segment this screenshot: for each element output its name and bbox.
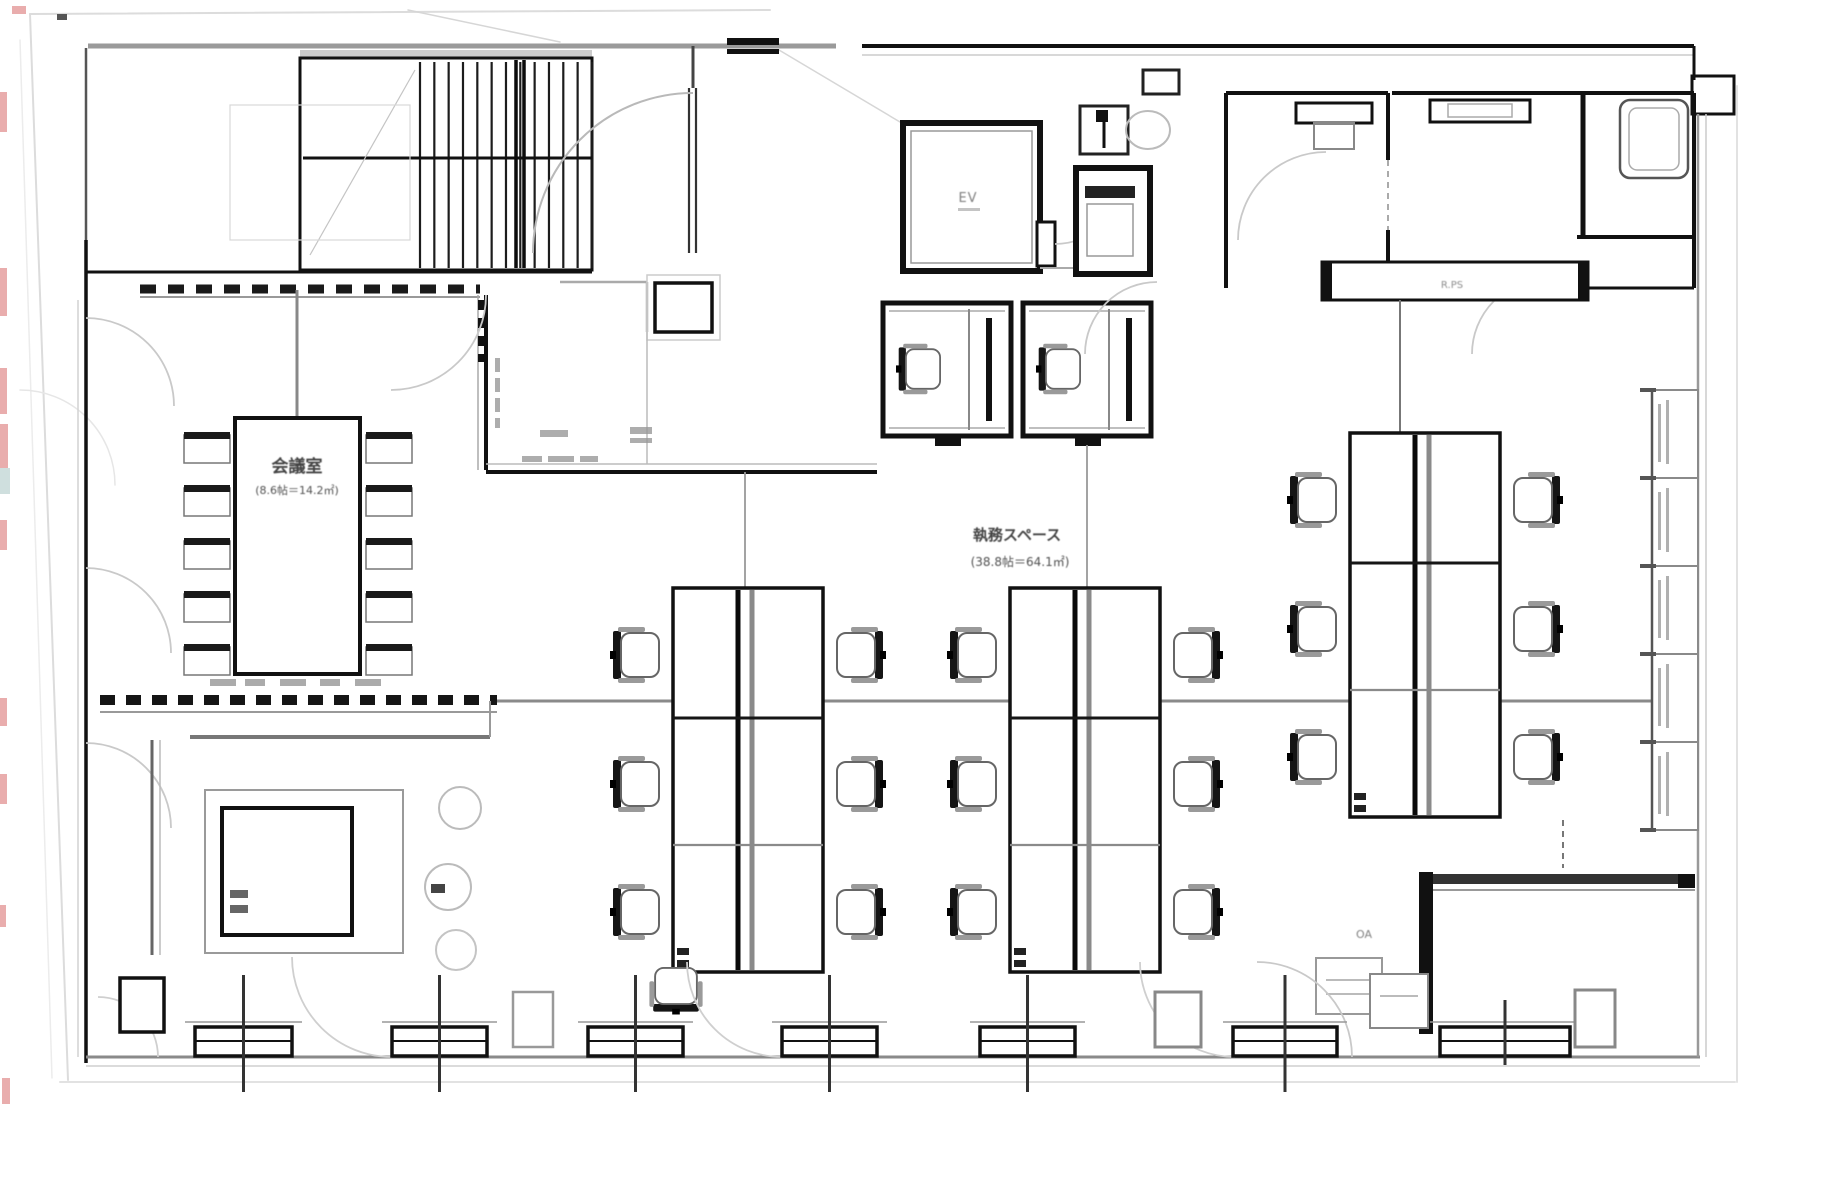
floor-plan-canvas: EV bbox=[0, 0, 1847, 1194]
meeting-room: 会議室 (8.6帖＝14.2㎡) bbox=[86, 290, 497, 712]
elevator-label: EV bbox=[958, 191, 977, 206]
office-chair bbox=[610, 884, 659, 940]
printer bbox=[1370, 974, 1428, 1028]
red-mark bbox=[12, 6, 26, 14]
office-chair bbox=[1174, 884, 1223, 940]
radiator-unit bbox=[772, 975, 887, 1092]
meeting-chair bbox=[184, 432, 230, 463]
radiator-unit bbox=[1430, 1000, 1580, 1065]
office-chair bbox=[610, 627, 659, 683]
meeting-chair bbox=[366, 485, 412, 516]
office-chair bbox=[649, 968, 702, 1015]
column-marker bbox=[120, 978, 164, 1032]
red-mark bbox=[0, 520, 7, 550]
desk-cluster bbox=[1010, 588, 1160, 972]
meeting-chair bbox=[184, 538, 230, 569]
column-marker bbox=[1575, 990, 1615, 1047]
radiator-unit bbox=[970, 975, 1085, 1092]
office-chair bbox=[837, 756, 886, 812]
office-chair bbox=[610, 756, 659, 812]
left-edge-red-marks bbox=[0, 6, 26, 1104]
booth-chair bbox=[896, 344, 940, 394]
toilet-block: R.PS bbox=[1076, 70, 1694, 433]
pipe-shaft-label: R.PS bbox=[1441, 280, 1463, 291]
meeting-room-area-label: (8.6帖＝14.2㎡) bbox=[255, 484, 339, 497]
office-chair bbox=[1287, 729, 1336, 785]
shelf-unit bbox=[1640, 740, 1698, 830]
red-mark bbox=[0, 268, 7, 316]
teal-mark bbox=[0, 468, 10, 494]
right-wall-shelves bbox=[1640, 388, 1698, 832]
phone-booths bbox=[883, 303, 1151, 446]
office-chair bbox=[1287, 601, 1336, 657]
shelf-unit bbox=[1640, 388, 1698, 478]
column-marker bbox=[1155, 992, 1201, 1047]
office-area-size-label: (38.8帖＝64.1㎡) bbox=[971, 554, 1070, 569]
shelf-unit bbox=[1640, 476, 1698, 566]
desk-cluster bbox=[1350, 433, 1500, 817]
office-chair bbox=[1174, 627, 1223, 683]
office-chair bbox=[1287, 472, 1336, 528]
office-chair bbox=[947, 884, 996, 940]
red-mark bbox=[0, 424, 8, 468]
phone-booth bbox=[1023, 303, 1151, 446]
office-chair bbox=[837, 627, 886, 683]
desk-cluster bbox=[673, 588, 823, 972]
meeting-chair bbox=[184, 591, 230, 622]
red-mark bbox=[0, 774, 7, 804]
office-chair bbox=[1174, 756, 1223, 812]
phone-booth bbox=[883, 303, 1011, 446]
shelf-unit bbox=[1640, 652, 1698, 742]
oa-label: OA bbox=[1356, 928, 1372, 941]
office-chair bbox=[1514, 729, 1563, 785]
meeting-chair bbox=[184, 485, 230, 516]
booth-chair bbox=[1036, 344, 1080, 394]
red-mark bbox=[0, 368, 7, 414]
meeting-chair bbox=[366, 538, 412, 569]
meeting-room-label: 会議室 bbox=[272, 456, 323, 477]
office-area-labels: 執務スペース (38.8帖＝64.1㎡) bbox=[971, 526, 1070, 569]
meeting-chair bbox=[366, 591, 412, 622]
red-mark bbox=[0, 92, 7, 132]
office-area-label: 執務スペース bbox=[973, 526, 1061, 544]
red-mark bbox=[0, 905, 6, 927]
column-marker bbox=[513, 992, 553, 1047]
office-chair bbox=[837, 884, 886, 940]
meeting-chair bbox=[366, 432, 412, 463]
meeting-chair bbox=[184, 644, 230, 675]
office-chair bbox=[947, 627, 996, 683]
radiator-unit bbox=[185, 975, 302, 1092]
shelf-unit bbox=[1640, 564, 1698, 654]
stool bbox=[436, 930, 476, 970]
red-mark bbox=[2, 1078, 10, 1104]
lounge bbox=[86, 701, 490, 970]
lounge-table bbox=[222, 808, 352, 935]
red-mark bbox=[0, 698, 7, 726]
office-chair bbox=[1514, 601, 1563, 657]
radiator-unit bbox=[382, 975, 497, 1092]
floor-plan-drawing: EV bbox=[0, 0, 1847, 1194]
meeting-chair bbox=[366, 644, 412, 675]
staircase bbox=[86, 50, 592, 297]
office-chair bbox=[1514, 472, 1563, 528]
office-chair bbox=[947, 756, 996, 812]
stool bbox=[439, 787, 481, 829]
